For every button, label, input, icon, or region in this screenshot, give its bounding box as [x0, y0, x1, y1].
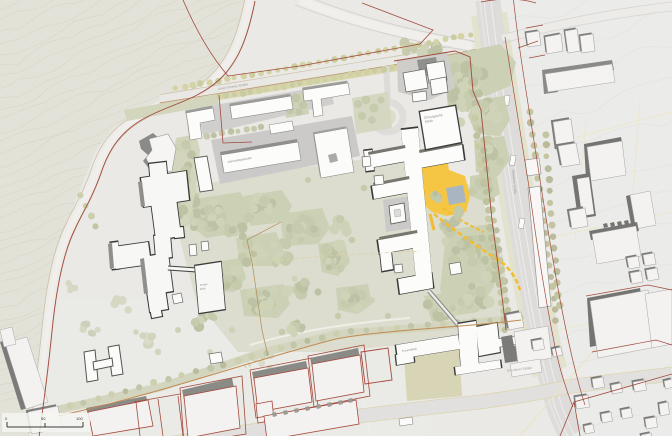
svg-text:50: 50: [41, 416, 46, 421]
svg-text:100: 100: [76, 416, 83, 421]
